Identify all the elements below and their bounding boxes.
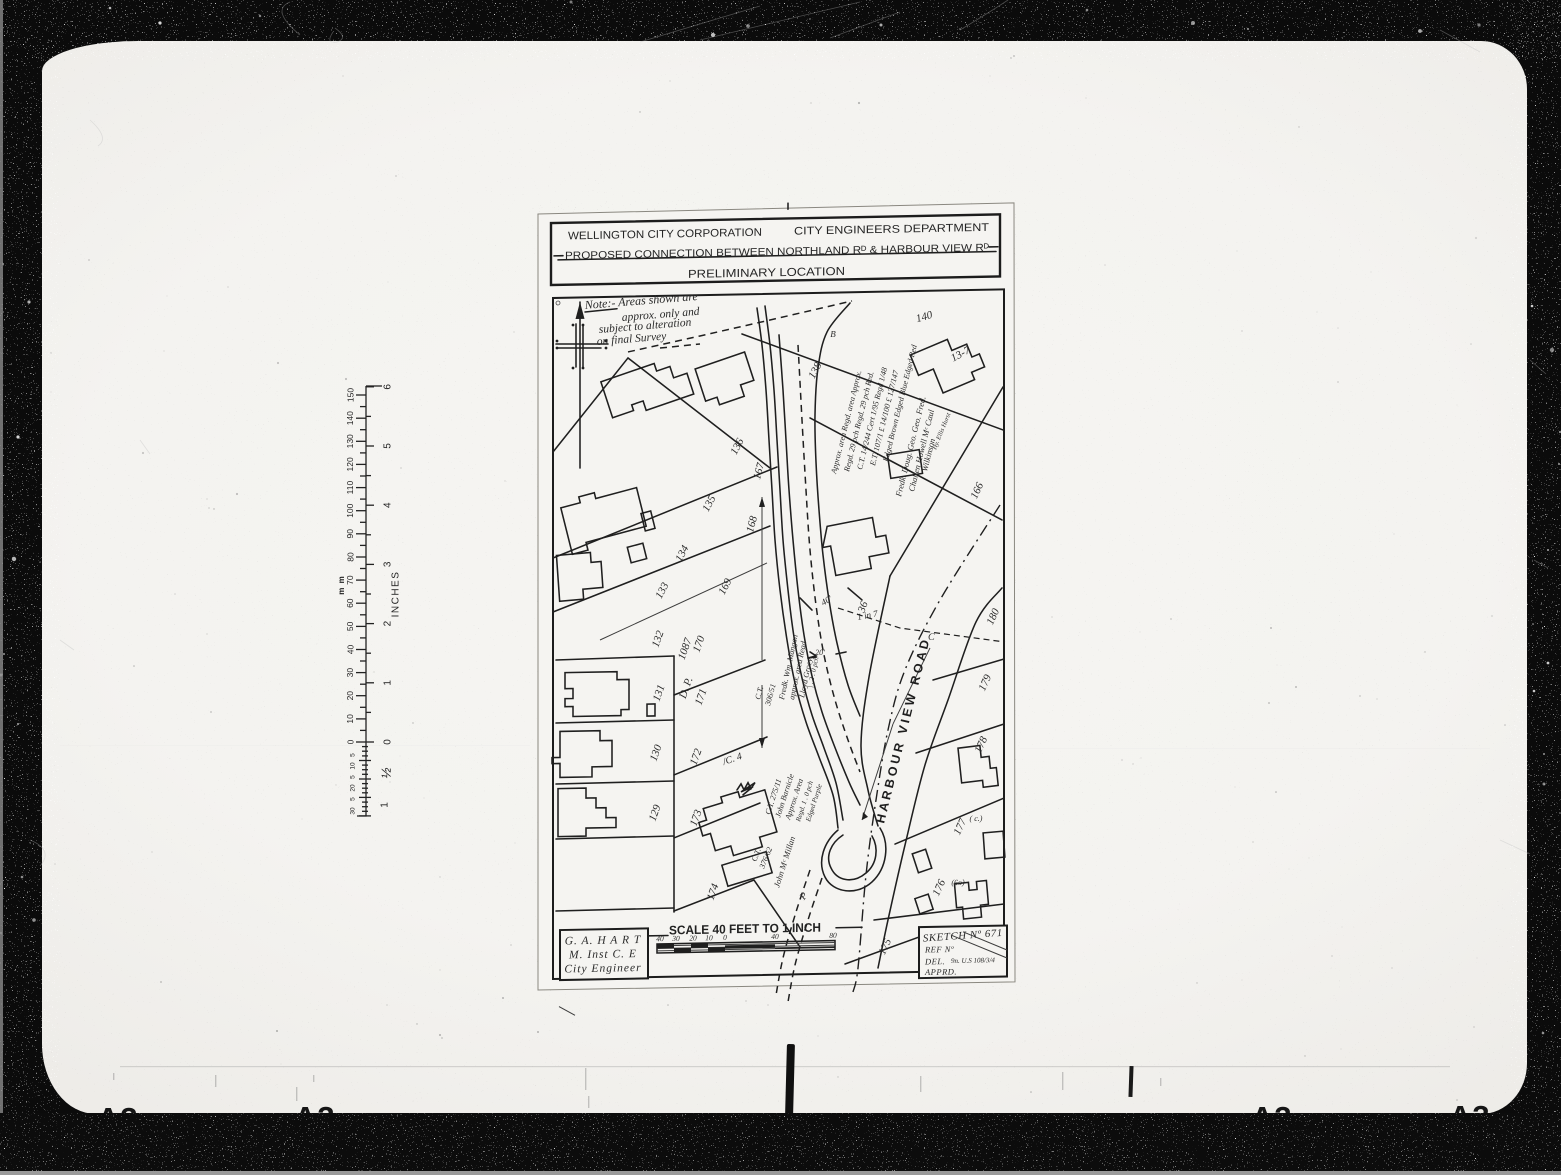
svg-text:2: 2 <box>383 620 394 626</box>
svg-text:5: 5 <box>350 753 357 757</box>
svg-text:1: 1 <box>380 802 391 808</box>
svg-text:110: 110 <box>345 481 355 495</box>
svg-text:G. A. H A R T: G. A. H A R T <box>565 934 642 947</box>
svg-text:REF Nº: REF Nº <box>924 944 954 955</box>
svg-text:M. Inst C. E: M. Inst C. E <box>568 948 637 961</box>
svg-text:(6o): (6o) <box>951 878 965 887</box>
svg-text:80: 80 <box>829 931 837 940</box>
svg-text:40: 40 <box>656 934 664 943</box>
svg-text:( c.): ( c.) <box>970 814 983 823</box>
svg-text:5: 5 <box>350 797 357 801</box>
svg-text:DEL.: DEL. <box>924 956 945 966</box>
svg-text:INCHES: INCHES <box>391 571 402 618</box>
svg-text:10: 10 <box>350 762 357 770</box>
svg-text:30: 30 <box>345 668 355 678</box>
svg-text:140: 140 <box>345 411 355 425</box>
svg-text:50: 50 <box>345 621 355 631</box>
svg-text:9n. U.S 108/3/4: 9n. U.S 108/3/4 <box>951 956 995 965</box>
svg-text:½: ½ <box>378 767 393 778</box>
svg-text:0: 0 <box>383 739 394 745</box>
svg-text:APPRD.: APPRD. <box>924 966 957 977</box>
svg-text:70: 70 <box>345 575 355 585</box>
svg-text:City Engineer: City Engineer <box>564 962 641 975</box>
svg-text:20: 20 <box>350 784 357 792</box>
svg-text:60: 60 <box>345 598 355 608</box>
svg-text:80: 80 <box>345 552 355 562</box>
svg-text:B: B <box>830 329 836 339</box>
svg-text:100: 100 <box>345 503 355 517</box>
svg-text:20: 20 <box>689 933 697 942</box>
svg-text:40: 40 <box>345 645 355 655</box>
svg-text:40: 40 <box>771 932 779 941</box>
svg-text:120: 120 <box>345 457 355 471</box>
svg-text:1: 1 <box>383 680 394 686</box>
svg-text:4: 4 <box>383 502 394 508</box>
svg-text:3: 3 <box>383 561 394 567</box>
svg-text:130: 130 <box>345 434 355 448</box>
svg-text:20: 20 <box>345 691 355 701</box>
svg-text:30: 30 <box>350 807 357 815</box>
svg-text:150: 150 <box>345 388 355 402</box>
svg-text:0: 0 <box>723 933 727 942</box>
svg-text:5: 5 <box>383 443 394 449</box>
svg-text:90: 90 <box>345 529 355 539</box>
svg-text:30: 30 <box>671 934 680 943</box>
svg-text:0: 0 <box>345 739 355 744</box>
svg-text:m m: m m <box>337 575 346 594</box>
svg-text:10: 10 <box>345 714 355 724</box>
svg-text:6: 6 <box>383 384 394 390</box>
svg-text:10: 10 <box>705 933 713 942</box>
svg-text:5: 5 <box>350 775 357 779</box>
